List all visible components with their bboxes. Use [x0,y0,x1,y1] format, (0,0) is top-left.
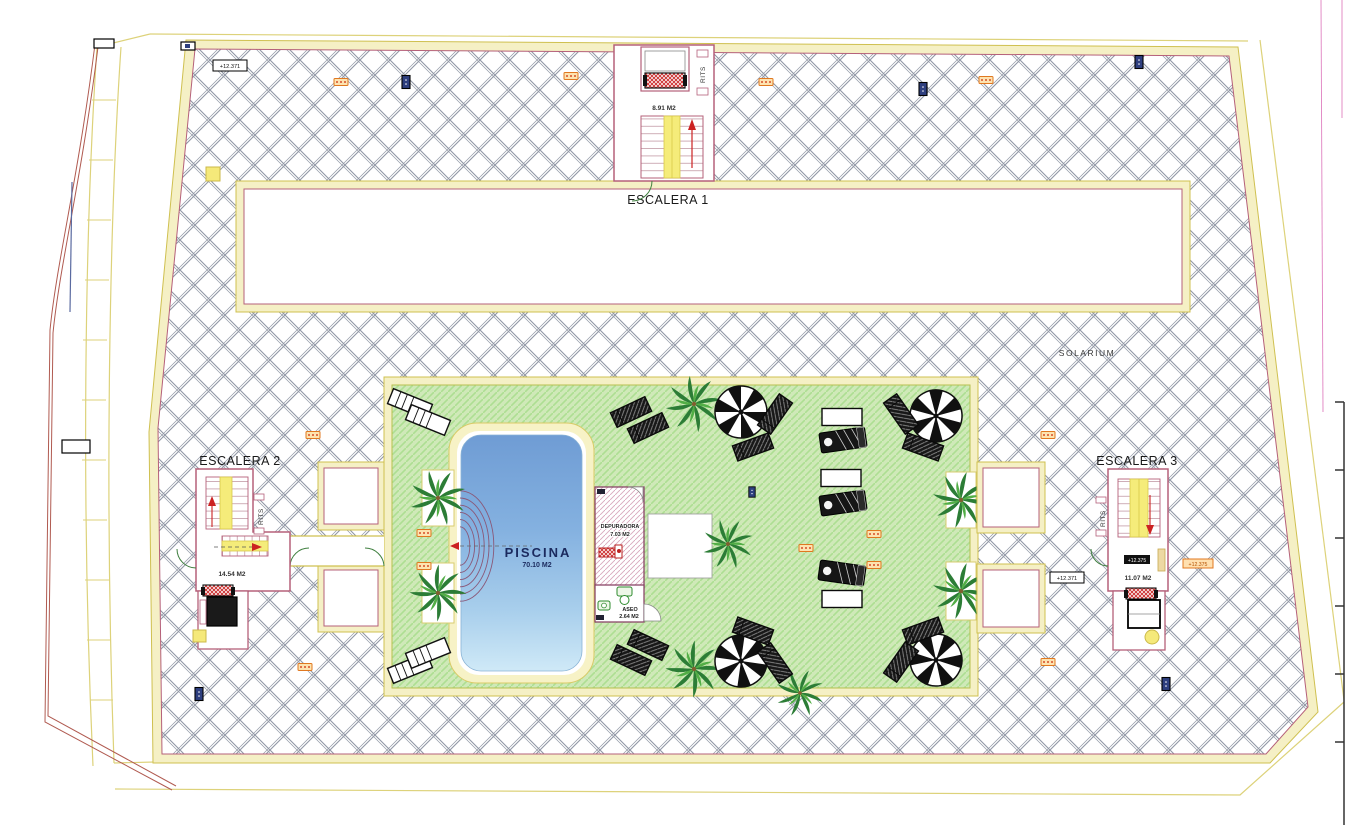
drain-marker-icon [1162,678,1170,691]
solarium-label: SOLARIUM [1059,348,1115,358]
table-icon [822,409,862,426]
light-marker-icon [334,79,348,86]
drain-marker-icon [596,615,604,620]
light-marker-icon [298,664,312,671]
aseo-area: 2.64 M2 [619,614,638,620]
light-marker-icon [417,530,431,537]
light-marker-icon [979,77,993,84]
drain-marker-icon [597,489,605,494]
light-marker-icon [417,563,431,570]
drain-marker-icon [402,76,410,89]
stair3-badge-text: +12.375 [1128,558,1146,564]
light-marker-icon [867,531,881,538]
drain-marker-icon [1135,56,1143,69]
elevator-car-icon [645,73,685,88]
pool-label: PISCINA [505,545,572,560]
depuradora-label: DEPURADORA [601,524,640,530]
light-marker-icon [564,73,578,80]
drain-marker-icon [195,688,203,701]
vent-icon [1145,630,1159,644]
sink-icon [598,601,610,610]
stair2-title: ESCALERA 2 [199,454,280,468]
light-marker-icon [759,79,773,86]
title-block-edge [1335,402,1344,825]
floor-plan-svg: ESCALERA 1 SOLARIUM PISCINA 70.10 M2 DEP… [0,0,1347,825]
drain-marker-icon [749,487,755,497]
depuradora-area: 7.03 M2 [610,532,629,538]
stair1-block: RITS 8.91 M2 [614,45,714,201]
stair1-rits-label: RITS [700,66,707,83]
light-marker-icon [867,562,881,569]
stair3-rits-label: RITS [1100,510,1107,527]
deck-platform [648,514,712,578]
aseo-label: ASEO [622,607,637,613]
stair3-title: ESCALERA 3 [1096,454,1177,468]
roof-box-icon [94,39,114,48]
vent-icon [193,630,206,642]
level-label: +12.371 [1057,576,1077,582]
drain-marker-icon [919,83,927,96]
open-void [236,181,1190,312]
light-marker-icon [799,545,813,552]
stair2-area-label: 14.54 M2 [218,571,245,578]
parasol-icon [715,386,767,438]
pool-area-label: 70.10 M2 [522,562,551,569]
level-label: +12.371 [220,64,240,70]
drain-marker-icon [185,44,190,48]
roof-box-icon [62,440,90,453]
stair2-rits-label: RITS [258,508,265,525]
rooftop-floor-plan: ESCALERA 1 SOLARIUM PISCINA 70.10 M2 DEP… [0,0,1347,825]
walkway-corridor [290,536,384,566]
light-marker-icon [1041,659,1055,666]
stair3-area-label: 11.07 M2 [1125,575,1152,582]
elevator-car-icon [207,597,237,626]
table-icon [821,470,861,487]
table-icon [822,591,862,608]
swimming-pool: PISCINA 70.10 M2 [449,423,594,683]
level-label: +12.375 [1189,562,1208,568]
light-marker-icon [306,432,320,439]
stair1-area-label: 8.91 M2 [652,105,676,112]
light-marker-icon [1041,432,1055,439]
vent-icon [206,167,220,181]
